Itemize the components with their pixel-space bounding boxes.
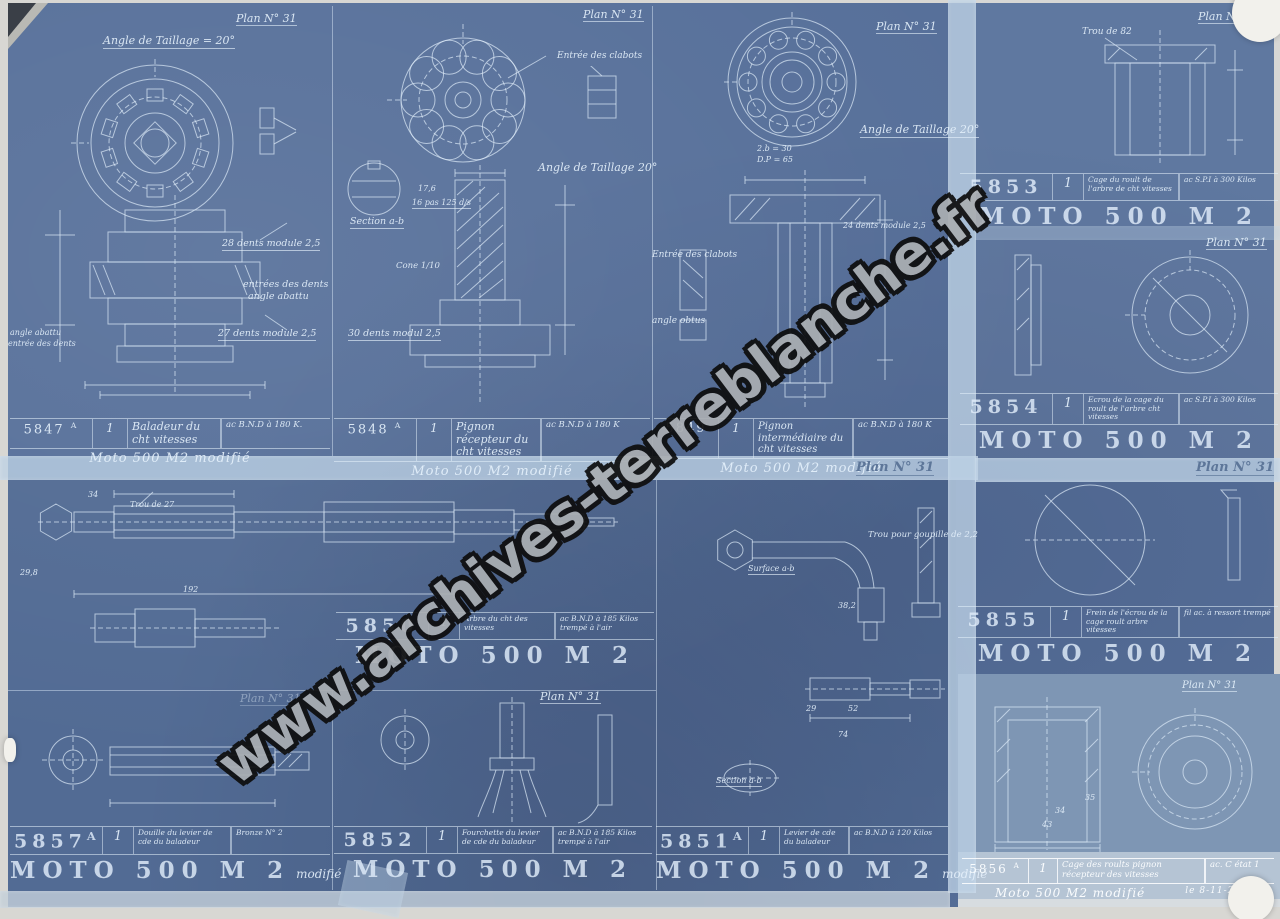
title-block-5857: 5857A 1 Douille du levier de cde du bala… <box>10 826 330 884</box>
part-number: 5854 <box>960 394 1053 424</box>
fork-views-5852 <box>350 695 650 830</box>
annotation-abattu2-5847: angle abattu <box>10 328 61 337</box>
material-spec: ac S.P.I à 300 Kilos <box>1179 174 1278 200</box>
annotation-trou82-5853: Trou de 82 <box>1082 27 1132 37</box>
bushing-section-5853 <box>1075 20 1275 170</box>
material-spec: fil ac. à ressort trempé <box>1179 607 1278 637</box>
quantity: 1 <box>427 827 458 853</box>
annotation-surface-5851: Surface a-b <box>748 564 795 575</box>
quantity: 1 <box>749 827 780 854</box>
model-name: Moto 500 M2 modifié <box>10 449 330 466</box>
material-spec: ac S.P.I à 300 Kilos <box>1179 394 1278 424</box>
plan-label-5847: Plan N° 31 <box>236 12 297 26</box>
material-spec: ac B.N.D à 180 K. <box>221 419 330 448</box>
part-number: 5851A <box>656 827 749 854</box>
annotation-d298-5850: 29,8 <box>20 568 38 577</box>
annotation-d74-5851: 74 <box>838 730 848 739</box>
part-description: Pignon intermédiaire du cht vitesses <box>754 419 853 458</box>
part-number: 5856 A <box>962 859 1029 883</box>
annotation-taillage-5849: Angle de Taillage 20° <box>860 123 979 138</box>
part-number: 5848 A <box>334 419 417 461</box>
plan-label-5851: Plan N° 31 <box>856 460 934 476</box>
annotation-taillage-5848: Angle de Taillage 20° <box>538 161 657 174</box>
gear-front-view-5849 <box>715 10 870 158</box>
annotation-d382-5851: 38,2 <box>838 601 856 610</box>
plan-label-5855: Plan N° 31 <box>1196 460 1274 476</box>
corner-fold <box>8 3 36 37</box>
title-block-5853: 5853 1 Cage du roult de l'arbre de cht v… <box>960 173 1278 230</box>
annotation-d176-5848: 17,6 <box>418 184 436 193</box>
quantity: 1 <box>1053 394 1084 424</box>
annotation-b30-5849: 2.b = 30 <box>757 144 792 153</box>
annotation-pas-5848: 16 pas 125 d/s <box>412 198 471 209</box>
part-number: 5847 A <box>10 419 93 448</box>
annotation-trou27-5850: Trou de 27 <box>130 500 174 509</box>
part-description: Frein de l'écrou de la cage roult arbre … <box>1082 607 1179 637</box>
material-spec: ac B.N.D à 120 Kilos <box>849 827 948 854</box>
annotation-section-5848: Section a-b <box>350 216 404 229</box>
part-description: Douille du levier de cde du baladeur <box>134 827 231 854</box>
annotation-obtus-5849: angle obtus <box>652 316 705 326</box>
part-description: Cage des roults pignon récepteur des vit… <box>1058 859 1205 883</box>
annotation-d34-5856: 34 <box>1055 806 1065 815</box>
part-number: 5852 <box>334 827 427 853</box>
annotation-dents30-5848: 30 dents modul 2,5 <box>348 328 441 341</box>
tooth-detail-5847 <box>248 100 308 170</box>
quantity: 1 <box>1029 859 1058 883</box>
circlip-views-5855 <box>985 480 1275 600</box>
annotation-cone-5848: Cone 1/10 <box>396 261 440 271</box>
material-spec: ac B.N.D à 180 K <box>853 419 948 458</box>
title-block-5854: 5854 1 Ecrou de la cage du roult de l'ar… <box>960 393 1278 454</box>
annotation-goupille-5851: Trou pour goupille de 2,2 <box>868 530 978 540</box>
annotation-d192-5850: 192 <box>183 585 198 594</box>
annotation-clabots-5849: Entrée des clabots <box>652 250 737 260</box>
part-description: Baladeur du cht vitesses <box>128 419 221 448</box>
title-block-5852: 5852 1 Fourchette du levier de cde du ba… <box>334 826 652 883</box>
quantity: 1 <box>93 419 128 448</box>
annotation-d43-5856: 43 <box>1042 820 1052 829</box>
model-name: MOTO 500 M 2 <box>960 425 1278 454</box>
plan-label-5854: Plan N° 31 <box>1206 236 1267 250</box>
title-block-5851: 5851A 1 Levier de cde du baladeur ac B.N… <box>656 826 948 884</box>
annotation-entree2-5847: entrée des dents <box>8 339 76 348</box>
annotation-dp-5849: D.P = 65 <box>757 155 793 164</box>
model-name: MOTO 500 M 2 <box>334 854 652 883</box>
part-description: Levier de cde du baladeur <box>780 827 849 854</box>
annotation-d35-5856: 35 <box>1085 793 1095 802</box>
model-name: MOTO 500 M 2 <box>958 638 1278 667</box>
annotation-section-5851: Section a-b <box>716 776 762 787</box>
shaft-end-detail-5850 <box>85 598 285 656</box>
cage-views-5856 <box>970 692 1275 852</box>
blueprint-scan: Plan N° 31 Plan N° 31 Plan N° 31 Plan N°… <box>0 0 1280 919</box>
quantity: 1 <box>417 419 452 461</box>
annotation-d52-5851: 52 <box>848 704 858 713</box>
title-block-5856: 5856 A 1 Cage des roults pignon récepteu… <box>962 858 1274 900</box>
model-name: Moto 500 M2 modifié <box>995 886 1145 900</box>
quantity: 1 <box>1051 607 1082 637</box>
quantity: 1 <box>1053 174 1084 200</box>
part-description: Fourchette du levier de cde du baladeur <box>458 827 553 853</box>
annotation-d29-5851: 29 <box>806 704 816 713</box>
material-spec: Bronze N° 2 <box>231 827 330 854</box>
panel-divider <box>332 6 333 456</box>
part-description: Pignon récepteur du cht vitesses <box>452 419 541 461</box>
quantity: 1 <box>103 827 134 854</box>
clabot-detail-5848 <box>572 66 636 130</box>
section-view-5847 <box>25 195 325 410</box>
part-description: Cage du roult de l'arbre de cht vitesses <box>1084 174 1179 200</box>
plan-label-5856: Plan N° 31 <box>1182 680 1237 692</box>
annotation-dents27-5847: 27 dents module 2,5 <box>218 328 316 341</box>
model-name: MOTO 500 M 2 <box>10 857 290 884</box>
model-name: MOTO 500 M 2 <box>656 857 936 884</box>
annotation-abattu-5847: angle abattu <box>248 291 309 302</box>
tape-bottom <box>0 891 950 908</box>
annotation-taillage-5847: Angle de Taillage = 20° <box>103 34 235 49</box>
plan-label-5849: Plan N° 31 <box>876 20 937 34</box>
part-number: 5855 <box>958 607 1051 637</box>
panel-divider <box>652 6 653 456</box>
plan-label-5852: Plan N° 31 <box>540 690 601 704</box>
corner-hole-bottom-right <box>1228 876 1274 919</box>
title-block-5855: 5855 1 Frein de l'écrou de la cage roult… <box>958 606 1278 667</box>
annotation-d34-5850: 34 <box>88 490 98 499</box>
part-description: Ecrou de la cage du roult de l'arbre cht… <box>1084 394 1179 424</box>
material-spec: ac B.N.D à 185 Kilos trempé à l'air <box>555 613 654 639</box>
edge-tear-left <box>4 738 16 762</box>
annotation-clabots-5848: Entrée des clabots <box>557 51 642 61</box>
plan-label-5848: Plan N° 31 <box>583 8 644 22</box>
annotation-dents28-5847: 28 dents module 2,5 <box>222 238 320 251</box>
annotation-entrees-5847: entrées des dents <box>243 279 328 290</box>
part-number: 5857A <box>10 827 103 854</box>
title-block-5847: 5847 A 1 Baladeur du cht vitesses ac B.N… <box>10 418 330 466</box>
nut-views-5854 <box>985 240 1275 390</box>
material-spec: ac B.N.D à 185 Kilos trempé à l'air <box>553 827 652 853</box>
model-name: MOTO 500 M 2 <box>960 201 1278 230</box>
